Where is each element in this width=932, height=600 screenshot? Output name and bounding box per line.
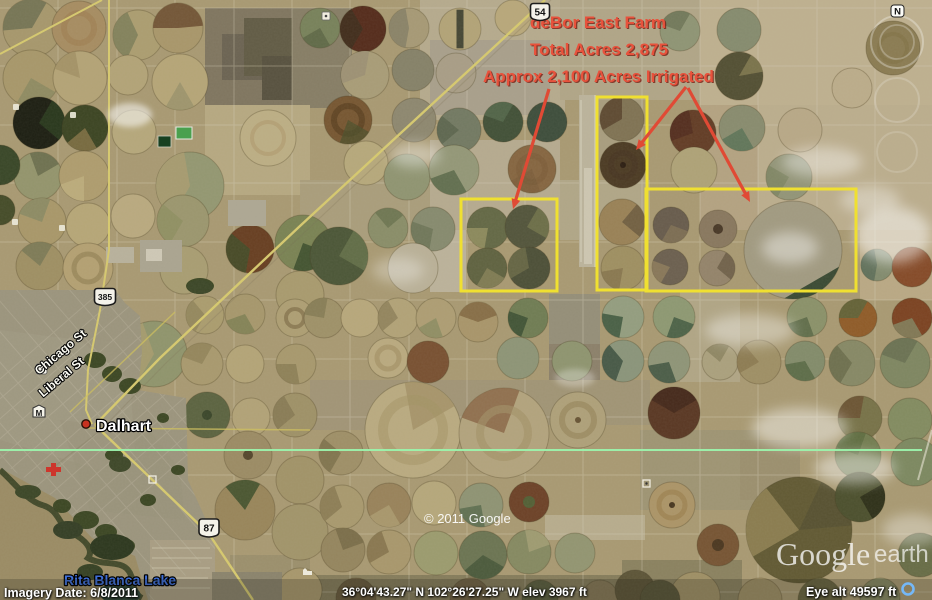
svg-text:Approx 2,100 Acres Irrigated: Approx 2,100 Acres Irrigated [483,67,714,86]
svg-text:54: 54 [534,8,546,19]
svg-text:87: 87 [203,524,215,535]
svg-text:M: M [36,409,43,418]
svg-text:earth: earth [874,541,929,568]
svg-text:Imagery Date: 6/8/2011: Imagery Date: 6/8/2011 [4,586,138,600]
svg-text:Total Acres 2,875: Total Acres 2,875 [530,40,668,59]
svg-text:385: 385 [98,292,112,302]
svg-text:Google: Google [776,536,870,572]
svg-text:N: N [894,7,901,18]
svg-text:deBor East Farm: deBor East Farm [530,13,666,32]
svg-text:36°04'43.27" N 102°26'27.25" W: 36°04'43.27" N 102°26'27.25" W elev 3967… [342,585,587,599]
svg-text:Eye alt 49597 ft: Eye alt 49597 ft [806,585,897,599]
svg-text:Dalhart: Dalhart [96,418,152,435]
svg-text:© 2011 Google: © 2011 Google [424,511,511,526]
